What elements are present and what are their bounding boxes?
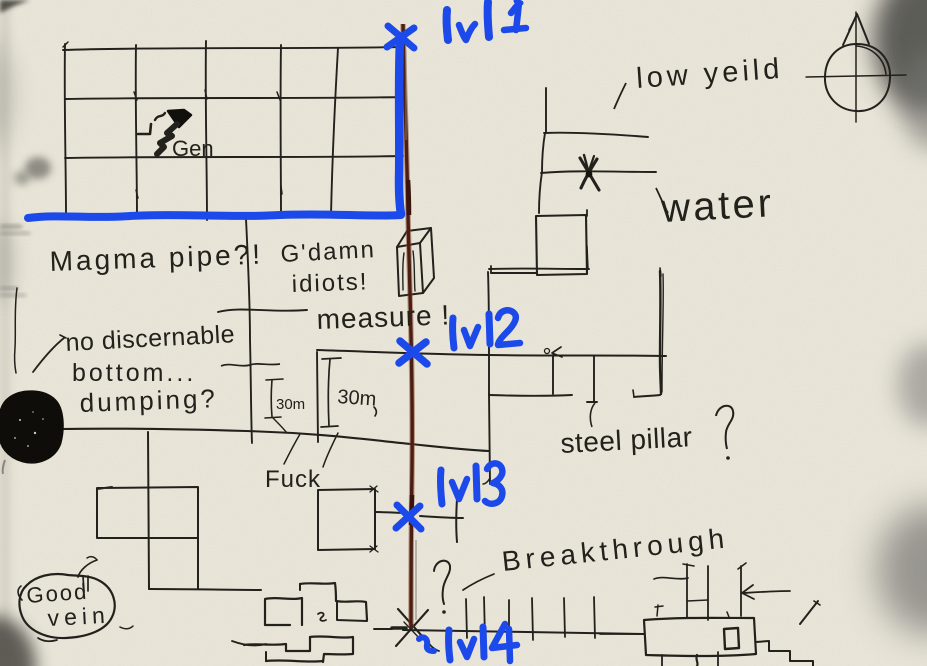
svg-text:30m: 30m xyxy=(337,386,377,411)
svg-text:Gen: Gen xyxy=(172,136,214,161)
svg-text:Fuck: Fuck xyxy=(265,466,321,493)
svg-text:bottom...: bottom... xyxy=(72,359,196,387)
svg-text:measure !: measure ! xyxy=(316,299,451,335)
svg-text:idiots!: idiots! xyxy=(291,268,369,298)
svg-text:vein: vein xyxy=(47,602,110,631)
svg-text:water: water xyxy=(659,181,775,231)
svg-text:30m: 30m xyxy=(276,396,305,413)
svg-text:G'damn: G'damn xyxy=(280,236,377,268)
svg-text:dumping?: dumping? xyxy=(79,383,218,418)
